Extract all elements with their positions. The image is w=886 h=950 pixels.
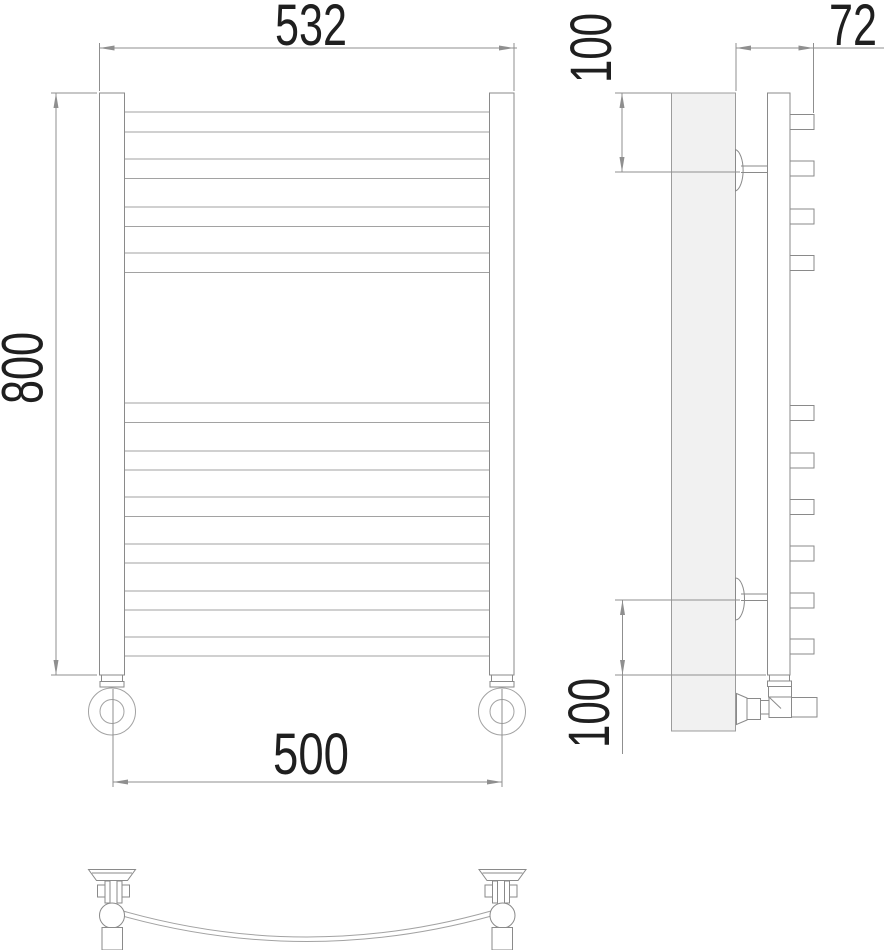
- dimension-arrow: [487, 780, 502, 785]
- foot-collar: [100, 682, 124, 688]
- wall-panel: [672, 93, 736, 731]
- radiator-technical-drawing: 532 800 500 72 100 100: [0, 0, 886, 950]
- fitting-nut: [485, 885, 493, 897]
- fitting-tail: [492, 928, 513, 950]
- valve-body-upper: [769, 687, 792, 698]
- dim-label-bottom-offset-group: 100: [557, 678, 622, 748]
- front-right-post: [490, 93, 515, 675]
- valve-neck: [770, 675, 790, 681]
- foot-outer-circle: [89, 688, 136, 735]
- fitting-nut: [510, 885, 518, 897]
- curved-rail-outer-edge: [123, 911, 491, 937]
- front-view: [89, 93, 526, 735]
- dimension-arrow: [736, 46, 751, 51]
- rung-stub: [790, 406, 814, 421]
- dim-label-wall-offset: 72: [829, 0, 877, 58]
- rung-stub: [790, 639, 814, 654]
- front-left-post: [100, 93, 125, 675]
- dim-label-top-offset-group: 100: [559, 13, 624, 83]
- fitting-tail: [102, 928, 123, 950]
- dimension-arrow: [100, 46, 115, 51]
- dim-label-overall-height-group: 800: [0, 332, 56, 404]
- foot-collar: [490, 682, 514, 688]
- dimension-arrow: [620, 660, 625, 675]
- dimension-arrow: [620, 157, 625, 172]
- front-rungs: [125, 112, 490, 656]
- dim-label-axis-spacing: 500: [273, 722, 349, 787]
- dim-label-overall-height: 800: [0, 332, 56, 404]
- drawing-sheet: 532 800 500 72 100 100: [0, 0, 886, 950]
- dimension-lines: [51, 43, 884, 787]
- rung-stub: [790, 161, 814, 176]
- dimension-arrow: [620, 600, 625, 615]
- dimension-arrow: [54, 93, 59, 108]
- dimension-arrow: [620, 93, 625, 108]
- fitting-handle: [89, 870, 136, 881]
- fitting-stem: [105, 881, 110, 903]
- valve-outlet-cap: [792, 698, 818, 718]
- fitting-handle: [479, 870, 526, 881]
- dim-label-bottom-bracket-offset: 100: [557, 678, 622, 748]
- foot-neck: [492, 675, 513, 682]
- dimension-overall-height: [51, 93, 97, 675]
- rail-end-circle: [100, 903, 125, 928]
- bottom-bracket-base: [736, 578, 745, 620]
- fitting-nut: [122, 885, 130, 897]
- rung-stub: [790, 209, 814, 224]
- dimension-arrow: [499, 46, 514, 51]
- foot-inner-circle: [100, 700, 124, 724]
- dimension-arrow: [799, 46, 814, 51]
- rung-stub: [790, 546, 814, 561]
- wall-pipe-flange: [737, 694, 748, 725]
- top-view-fittings: [89, 870, 527, 950]
- fitting-nut: [98, 885, 106, 897]
- valve-collar: [768, 681, 792, 687]
- rail-end-circle: [490, 903, 515, 928]
- side-post: [768, 93, 791, 675]
- wall-pipe-block: [747, 699, 761, 720]
- foot-valve: [89, 675, 136, 735]
- fitting-stem: [505, 881, 510, 903]
- top-view-valve-fitting: [89, 870, 136, 950]
- dim-label-overall-width: 532: [275, 0, 347, 58]
- side-bottom-valve: [737, 675, 818, 725]
- fitting-stem: [117, 881, 122, 903]
- fitting-stem: [493, 881, 498, 903]
- rung-stub: [790, 500, 814, 515]
- wall-pipe-stub: [761, 701, 770, 715]
- side-rung-stubs: [790, 115, 814, 655]
- rung-stub: [790, 453, 814, 468]
- top-view: [89, 870, 527, 950]
- rung-stub: [790, 115, 814, 130]
- rung-stub: [790, 256, 814, 271]
- dim-label-top-bracket-offset: 100: [559, 13, 624, 83]
- foot-neck: [102, 675, 123, 682]
- rung-stub: [790, 593, 814, 608]
- dimension-arrow: [113, 780, 128, 785]
- dimension-arrow: [54, 660, 59, 675]
- top-view-valve-fitting: [479, 870, 526, 950]
- top-bracket-base: [736, 150, 744, 192]
- curved-rail-inner-edge: [123, 916, 492, 942]
- side-view: [672, 93, 818, 731]
